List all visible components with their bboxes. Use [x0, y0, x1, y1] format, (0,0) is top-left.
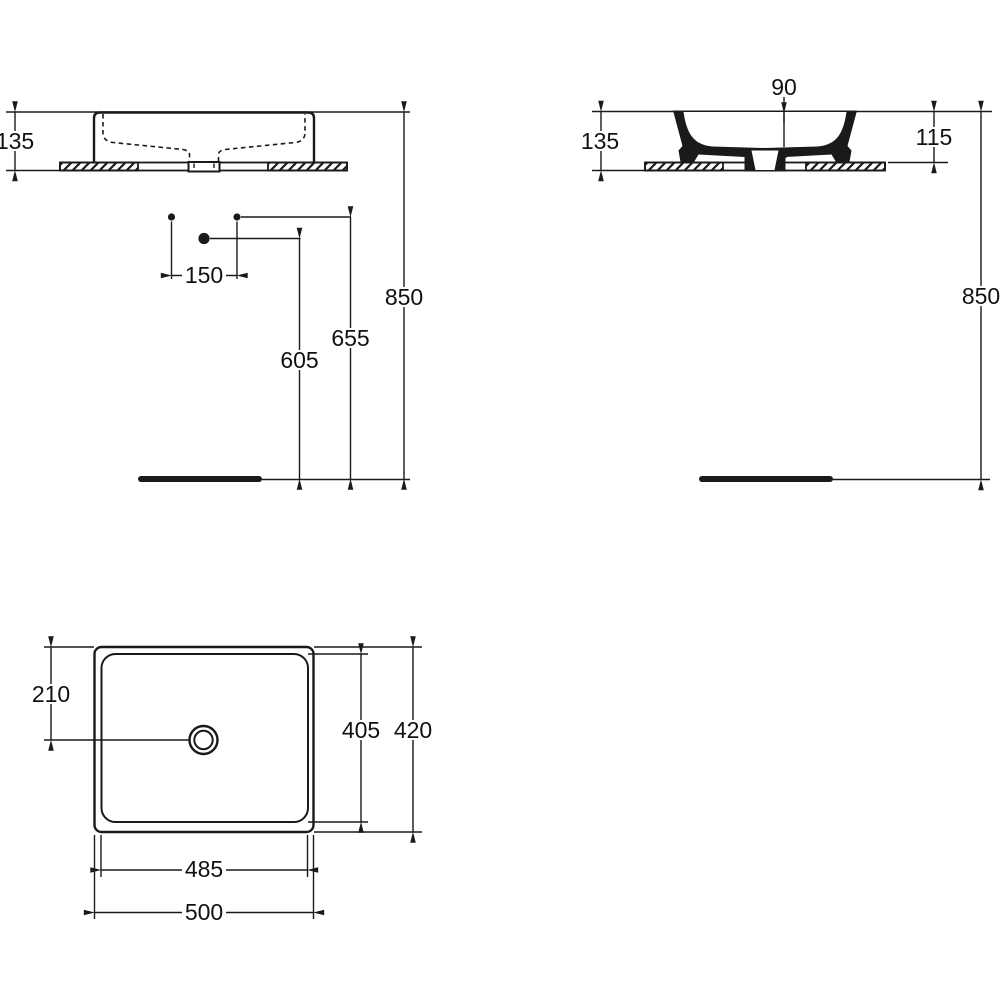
technical-drawing: 135 150 605 655 850	[0, 0, 1000, 1000]
dim-label-front-height: 135	[0, 128, 34, 154]
plan-drain-inner-circle	[194, 731, 212, 749]
front-view: 135 150 605 655 850	[0, 112, 426, 480]
dim-label-plan-inner-width: 485	[185, 856, 223, 882]
dim-label-side-body-height: 115	[916, 124, 953, 150]
basin-drain-interior	[752, 151, 779, 171]
front-bowl-hidden-line-right	[219, 114, 306, 162]
supply-point-left	[168, 213, 175, 220]
dim-label-side-bowl-depth: 90	[771, 74, 797, 100]
dim-label-side-rim-height: 850	[962, 283, 1000, 309]
basin-bowl-interior	[684, 112, 847, 148]
plan-inner-outline	[102, 654, 309, 822]
drain-point	[198, 233, 209, 244]
side-view: 90 135 115 850	[578, 74, 1000, 480]
dim-label-front-tap-spacing: 150	[185, 262, 223, 288]
front-bowl-hidden-line-left	[103, 114, 190, 162]
side-counter-hatch-left	[645, 163, 723, 171]
front-drain-stub	[189, 162, 220, 172]
side-counter-hatch-right	[806, 163, 885, 171]
drawing-page: 135 150 605 655 850	[0, 0, 1000, 1000]
dim-label-front-drain-height: 605	[280, 347, 318, 373]
dim-label-front-rim-height: 850	[385, 284, 423, 310]
front-counter-hatch-right	[268, 163, 347, 171]
dim-label-plan-outer-depth: 420	[394, 717, 432, 743]
dim-label-plan-outer-width: 500	[185, 899, 223, 925]
dim-label-front-supply-height: 655	[331, 325, 369, 351]
front-counter-hatch-left	[60, 163, 138, 171]
dim-label-side-height: 135	[581, 128, 619, 154]
dim-label-plan-drain-offset: 210	[32, 681, 70, 707]
dim-label-plan-inner-depth: 405	[342, 717, 380, 743]
plan-view: 210 405 420 485 500	[29, 647, 435, 925]
front-basin-outline	[94, 113, 314, 163]
supply-point-right	[233, 213, 240, 220]
